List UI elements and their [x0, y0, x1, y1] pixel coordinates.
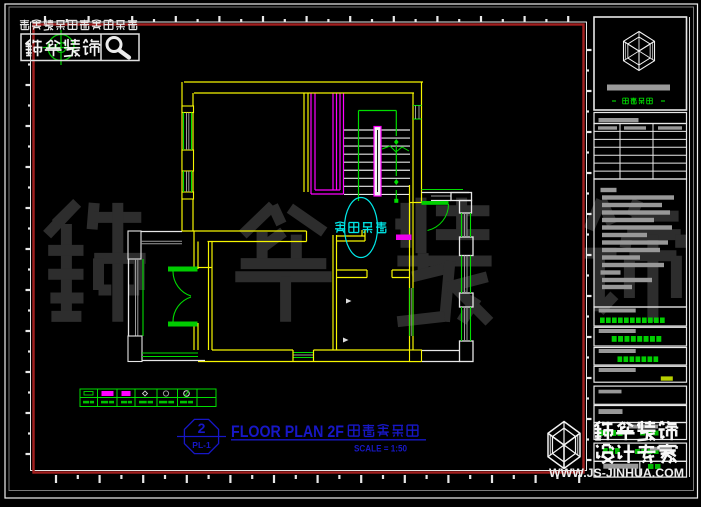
svg-text:SCALE = 1:50: SCALE = 1:50 [354, 444, 407, 454]
svg-text:FLOOR PLAN 2F: FLOOR PLAN 2F [231, 423, 344, 441]
svg-text:PL-1: PL-1 [192, 440, 211, 450]
svg-text:WWW.JS-JINHUA.COM: WWW.JS-JINHUA.COM [549, 466, 684, 480]
svg-text:2: 2 [198, 420, 206, 436]
